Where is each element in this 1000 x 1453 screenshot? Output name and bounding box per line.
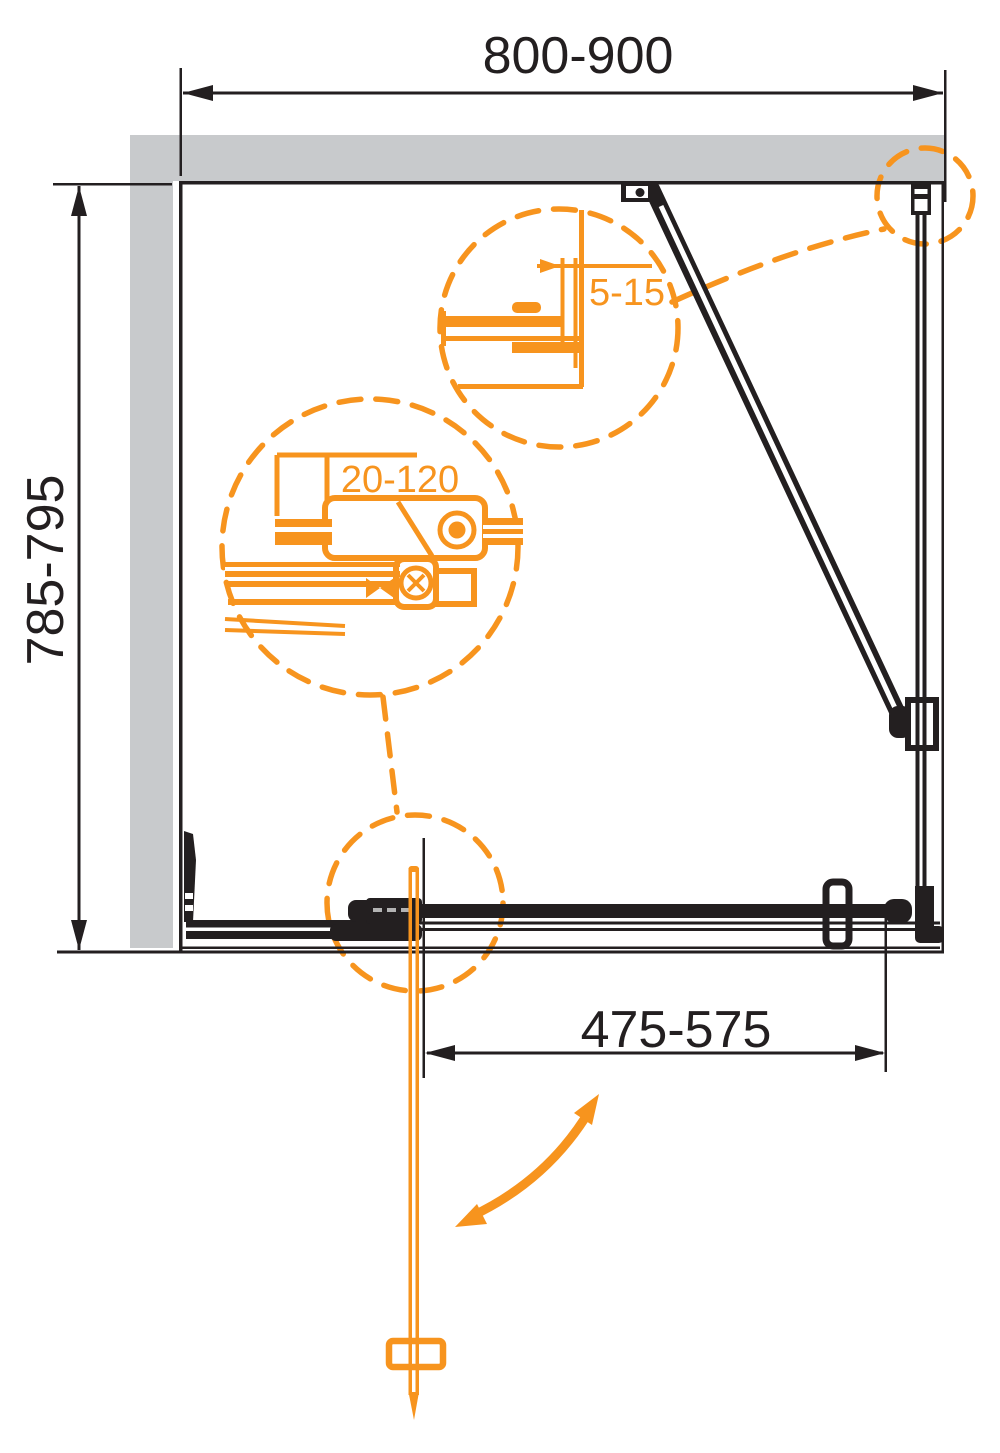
door-glass-line-2 [416, 868, 420, 1395]
pivot-axis-ext-line [423, 838, 426, 1078]
end-block [436, 571, 474, 604]
frame-left-line [179, 181, 183, 952]
closed-door-bar [352, 904, 888, 918]
stabilizer-bar-highlight [661, 206, 895, 708]
adjustment-dim-arrow [540, 259, 560, 273]
ext-line-right [885, 918, 888, 1072]
right-rail-gap-2 [483, 534, 523, 538]
width-dimension-label: 800-900 [483, 27, 674, 85]
frame-right-line [942, 181, 945, 952]
profile-base-bar [512, 342, 583, 353]
wall-profile-detail-circle [440, 209, 678, 447]
door-glass-line-1 [409, 868, 413, 1395]
bracket-diagonal [398, 502, 432, 556]
swing-arrow [455, 1094, 599, 1227]
bracket-adjustment-label: 20-120 [341, 459, 459, 501]
pivot-lower-block [330, 924, 422, 941]
right-rail-block [483, 518, 523, 545]
arrowhead-up [71, 186, 87, 216]
arrowhead-left [425, 1045, 455, 1061]
arrowhead-left [183, 85, 213, 101]
plan-drawing-canvas: 5-15 20-120 [0, 0, 1000, 1453]
telescopic-dash-1 [373, 908, 382, 912]
profile-bar-small [512, 302, 541, 313]
wall-profile-adjustment-label: 5-15 [589, 272, 665, 314]
seal-line [443, 336, 580, 341]
glass-pane-bar [443, 316, 563, 327]
dim-line [78, 186, 81, 950]
threshold-line-2 [225, 630, 345, 634]
ext-line-left [180, 68, 183, 176]
open-door [389, 866, 599, 1420]
detail-callouts: 5-15 20-120 [222, 148, 973, 991]
stabilizer-bar [621, 181, 911, 738]
left-wall [130, 181, 173, 948]
adjustment-bracket-detail: 20-120 [222, 399, 523, 695]
arrowhead-right [913, 85, 943, 101]
top-wall [130, 135, 944, 181]
dim-line [183, 92, 943, 95]
roller-pin [449, 522, 466, 539]
door-opening-dimension-label: 475-575 [581, 1001, 772, 1059]
swing-arrowhead-top [574, 1094, 599, 1125]
left-rail-gap [275, 527, 332, 532]
ext-line-right [944, 70, 947, 202]
lower-rail-gap [225, 567, 400, 571]
lower-rail-line-2 [228, 599, 398, 605]
panel-top-mount-clamp [915, 194, 928, 199]
arrowhead-down [71, 920, 87, 950]
dimension-bottom: 475-575 [423, 838, 888, 1078]
frame-top-line [179, 181, 945, 185]
panel-glass-line-1 [916, 200, 920, 888]
panel-top-mount-slot [915, 189, 928, 211]
swing-arc [472, 1110, 590, 1216]
tray-front-line [57, 951, 944, 954]
left-profile-notch-1 [185, 893, 193, 899]
telescopic-dash-2 [387, 908, 396, 912]
right-rail-gap-1 [483, 525, 523, 529]
door-bottom-tip [409, 1392, 420, 1420]
left-profile-notch-2 [185, 905, 193, 911]
ext-line-top [53, 183, 172, 186]
wall-mount-pivot [636, 188, 645, 197]
stabilizer-panel-bracket [908, 700, 936, 748]
arrowhead-right [855, 1045, 885, 1061]
door-hinge-knuckle [884, 899, 912, 923]
panel-glass-line-2 [923, 200, 927, 888]
rail-thin-line-1 [412, 922, 940, 925]
depth-dimension-label: 785-795 [17, 475, 75, 666]
leader-bracket-to-pivot [383, 697, 397, 812]
adjustment-bracket-detail-circle [222, 399, 518, 695]
shower-enclosure-plan: 5-15 20-120 [0, 0, 1000, 1453]
panel-bottom-elbow-vertical [915, 886, 934, 932]
bottom-rail-assembly [184, 831, 940, 946]
rail-thin-line-2 [412, 928, 940, 931]
wall-profile-detail: 5-15 [440, 209, 678, 447]
fixed-panel-right [884, 183, 944, 943]
